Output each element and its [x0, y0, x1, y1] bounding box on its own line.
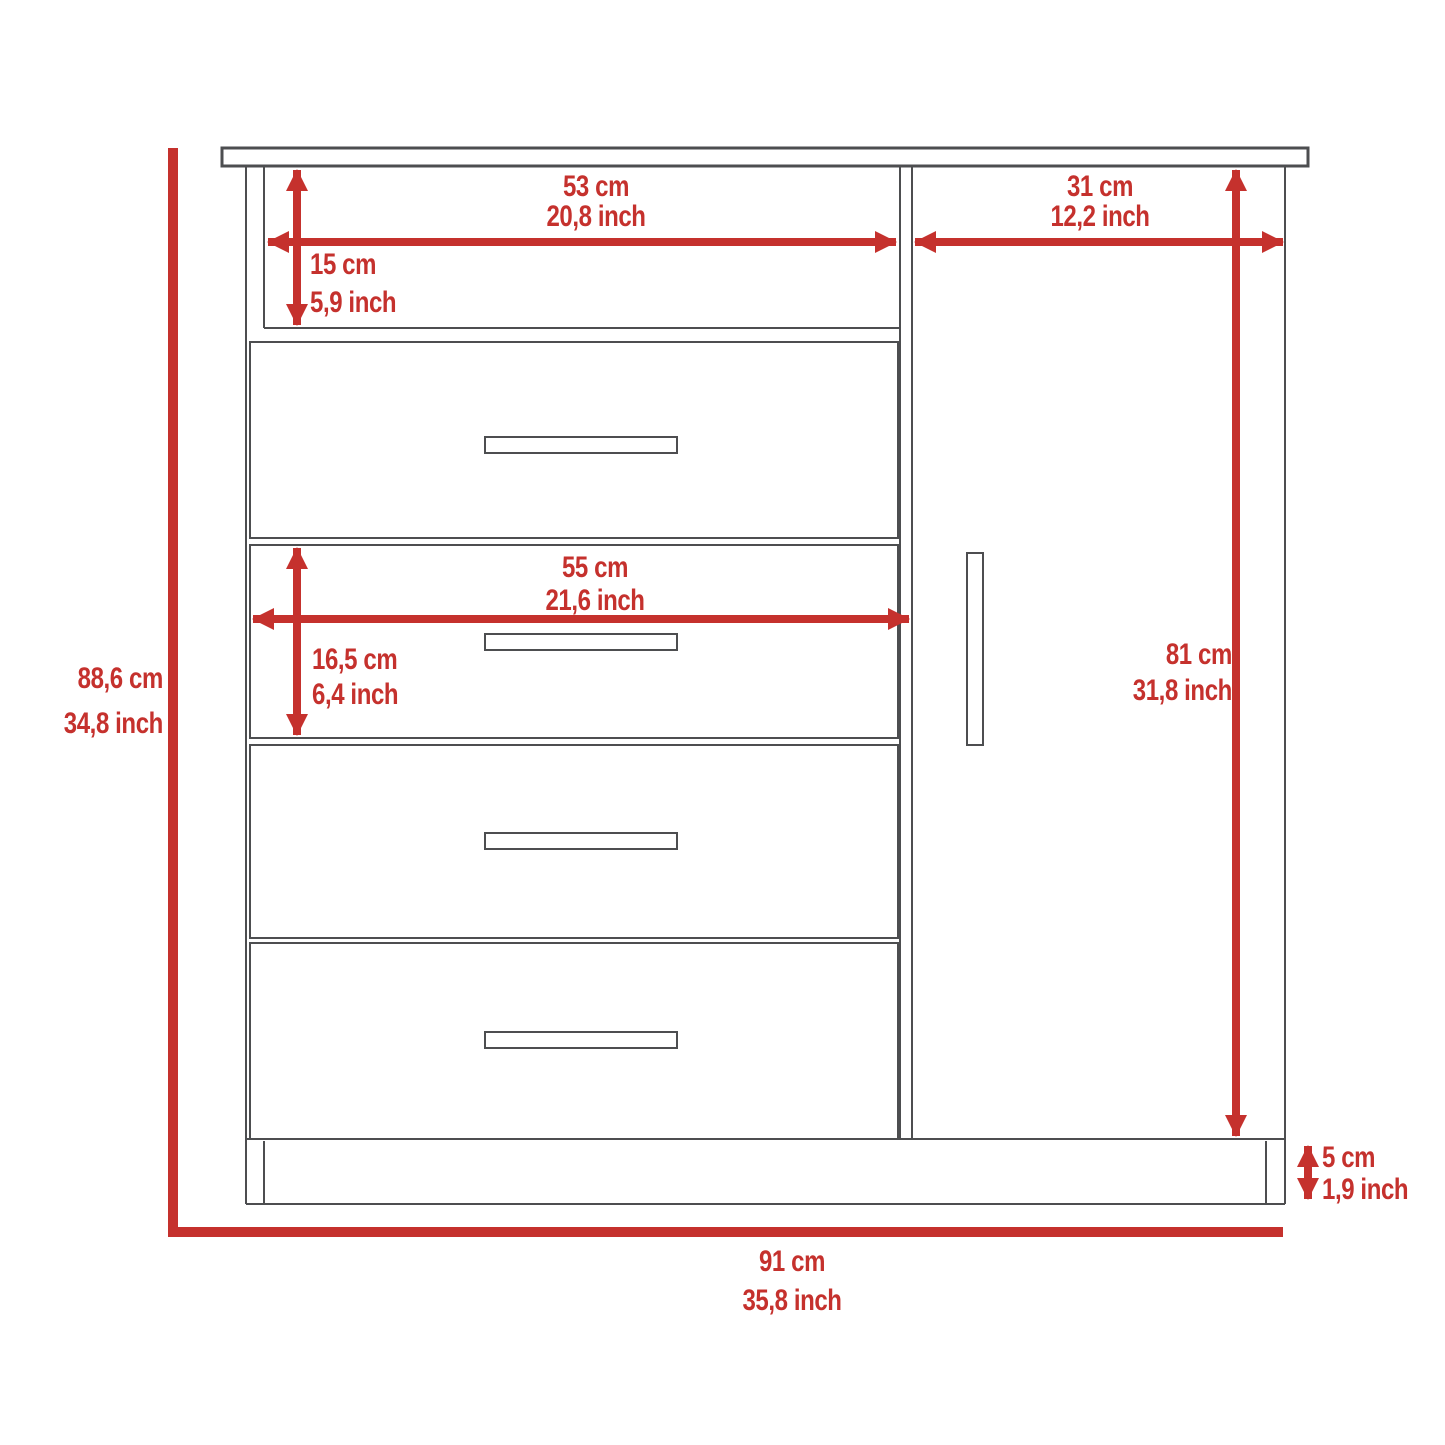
- top-board: [222, 148, 1308, 166]
- drawer-2-handle: [485, 634, 677, 650]
- dim-overall-height: 88,6 cm 34,8 inch: [64, 656, 163, 746]
- furniture-line-drawing: [0, 0, 1445, 1445]
- dim-drawer-height-inch: 6,4 inch: [312, 677, 398, 712]
- drawer-4-handle: [485, 1032, 677, 1048]
- dim-door-width-cm: 31 cm: [1020, 172, 1180, 202]
- door-handle: [967, 553, 983, 745]
- dim-door-height-inch: 31,8 inch: [1133, 673, 1232, 709]
- dim-drawer-height-cm: 16,5 cm: [312, 642, 398, 677]
- dim-base-height-inch: 1,9 inch: [1322, 1174, 1408, 1206]
- dim-overall-height-inch: 34,8 inch: [64, 701, 163, 746]
- dim-drawer-width-inch: 21,6 inch: [515, 584, 675, 617]
- dim-shelf-width: 53 cm 20,8 inch: [516, 172, 676, 232]
- dim-shelf-width-cm: 53 cm: [516, 172, 676, 202]
- dim-base-height: 5 cm 1,9 inch: [1322, 1142, 1408, 1206]
- dim-drawer-height: 16,5 cm 6,4 inch: [312, 642, 398, 712]
- dim-drawer-width: 55 cm 21,6 inch: [515, 551, 675, 617]
- dim-overall-width-cm: 91 cm: [712, 1242, 872, 1281]
- drawer-3-handle: [485, 833, 677, 849]
- dim-door-width: 31 cm 12,2 inch: [1020, 172, 1180, 232]
- dim-shelf-height-cm: 15 cm: [310, 246, 396, 284]
- dim-overall-width: 91 cm 35,8 inch: [712, 1242, 872, 1320]
- dim-drawer-width-cm: 55 cm: [515, 551, 675, 584]
- dim-shelf-height: 15 cm 5,9 inch: [310, 246, 396, 322]
- dim-door-height: 81 cm 31,8 inch: [1133, 637, 1232, 709]
- drawer-4: [250, 943, 898, 1139]
- dim-overall-width-inch: 35,8 inch: [712, 1281, 872, 1320]
- drawer-3: [250, 745, 898, 938]
- dim-shelf-height-inch: 5,9 inch: [310, 284, 396, 322]
- dim-overall-height-cm: 88,6 cm: [64, 656, 163, 701]
- dim-base-height-cm: 5 cm: [1322, 1142, 1408, 1174]
- dim-door-width-inch: 12,2 inch: [1020, 202, 1180, 232]
- drawer-1-handle: [485, 437, 677, 453]
- dimension-diagram: 53 cm 20,8 inch 31 cm 12,2 inch 15 cm 5,…: [0, 0, 1445, 1445]
- dim-shelf-width-inch: 20,8 inch: [516, 202, 676, 232]
- drawer-1: [250, 342, 898, 538]
- dim-door-height-cm: 81 cm: [1133, 637, 1232, 673]
